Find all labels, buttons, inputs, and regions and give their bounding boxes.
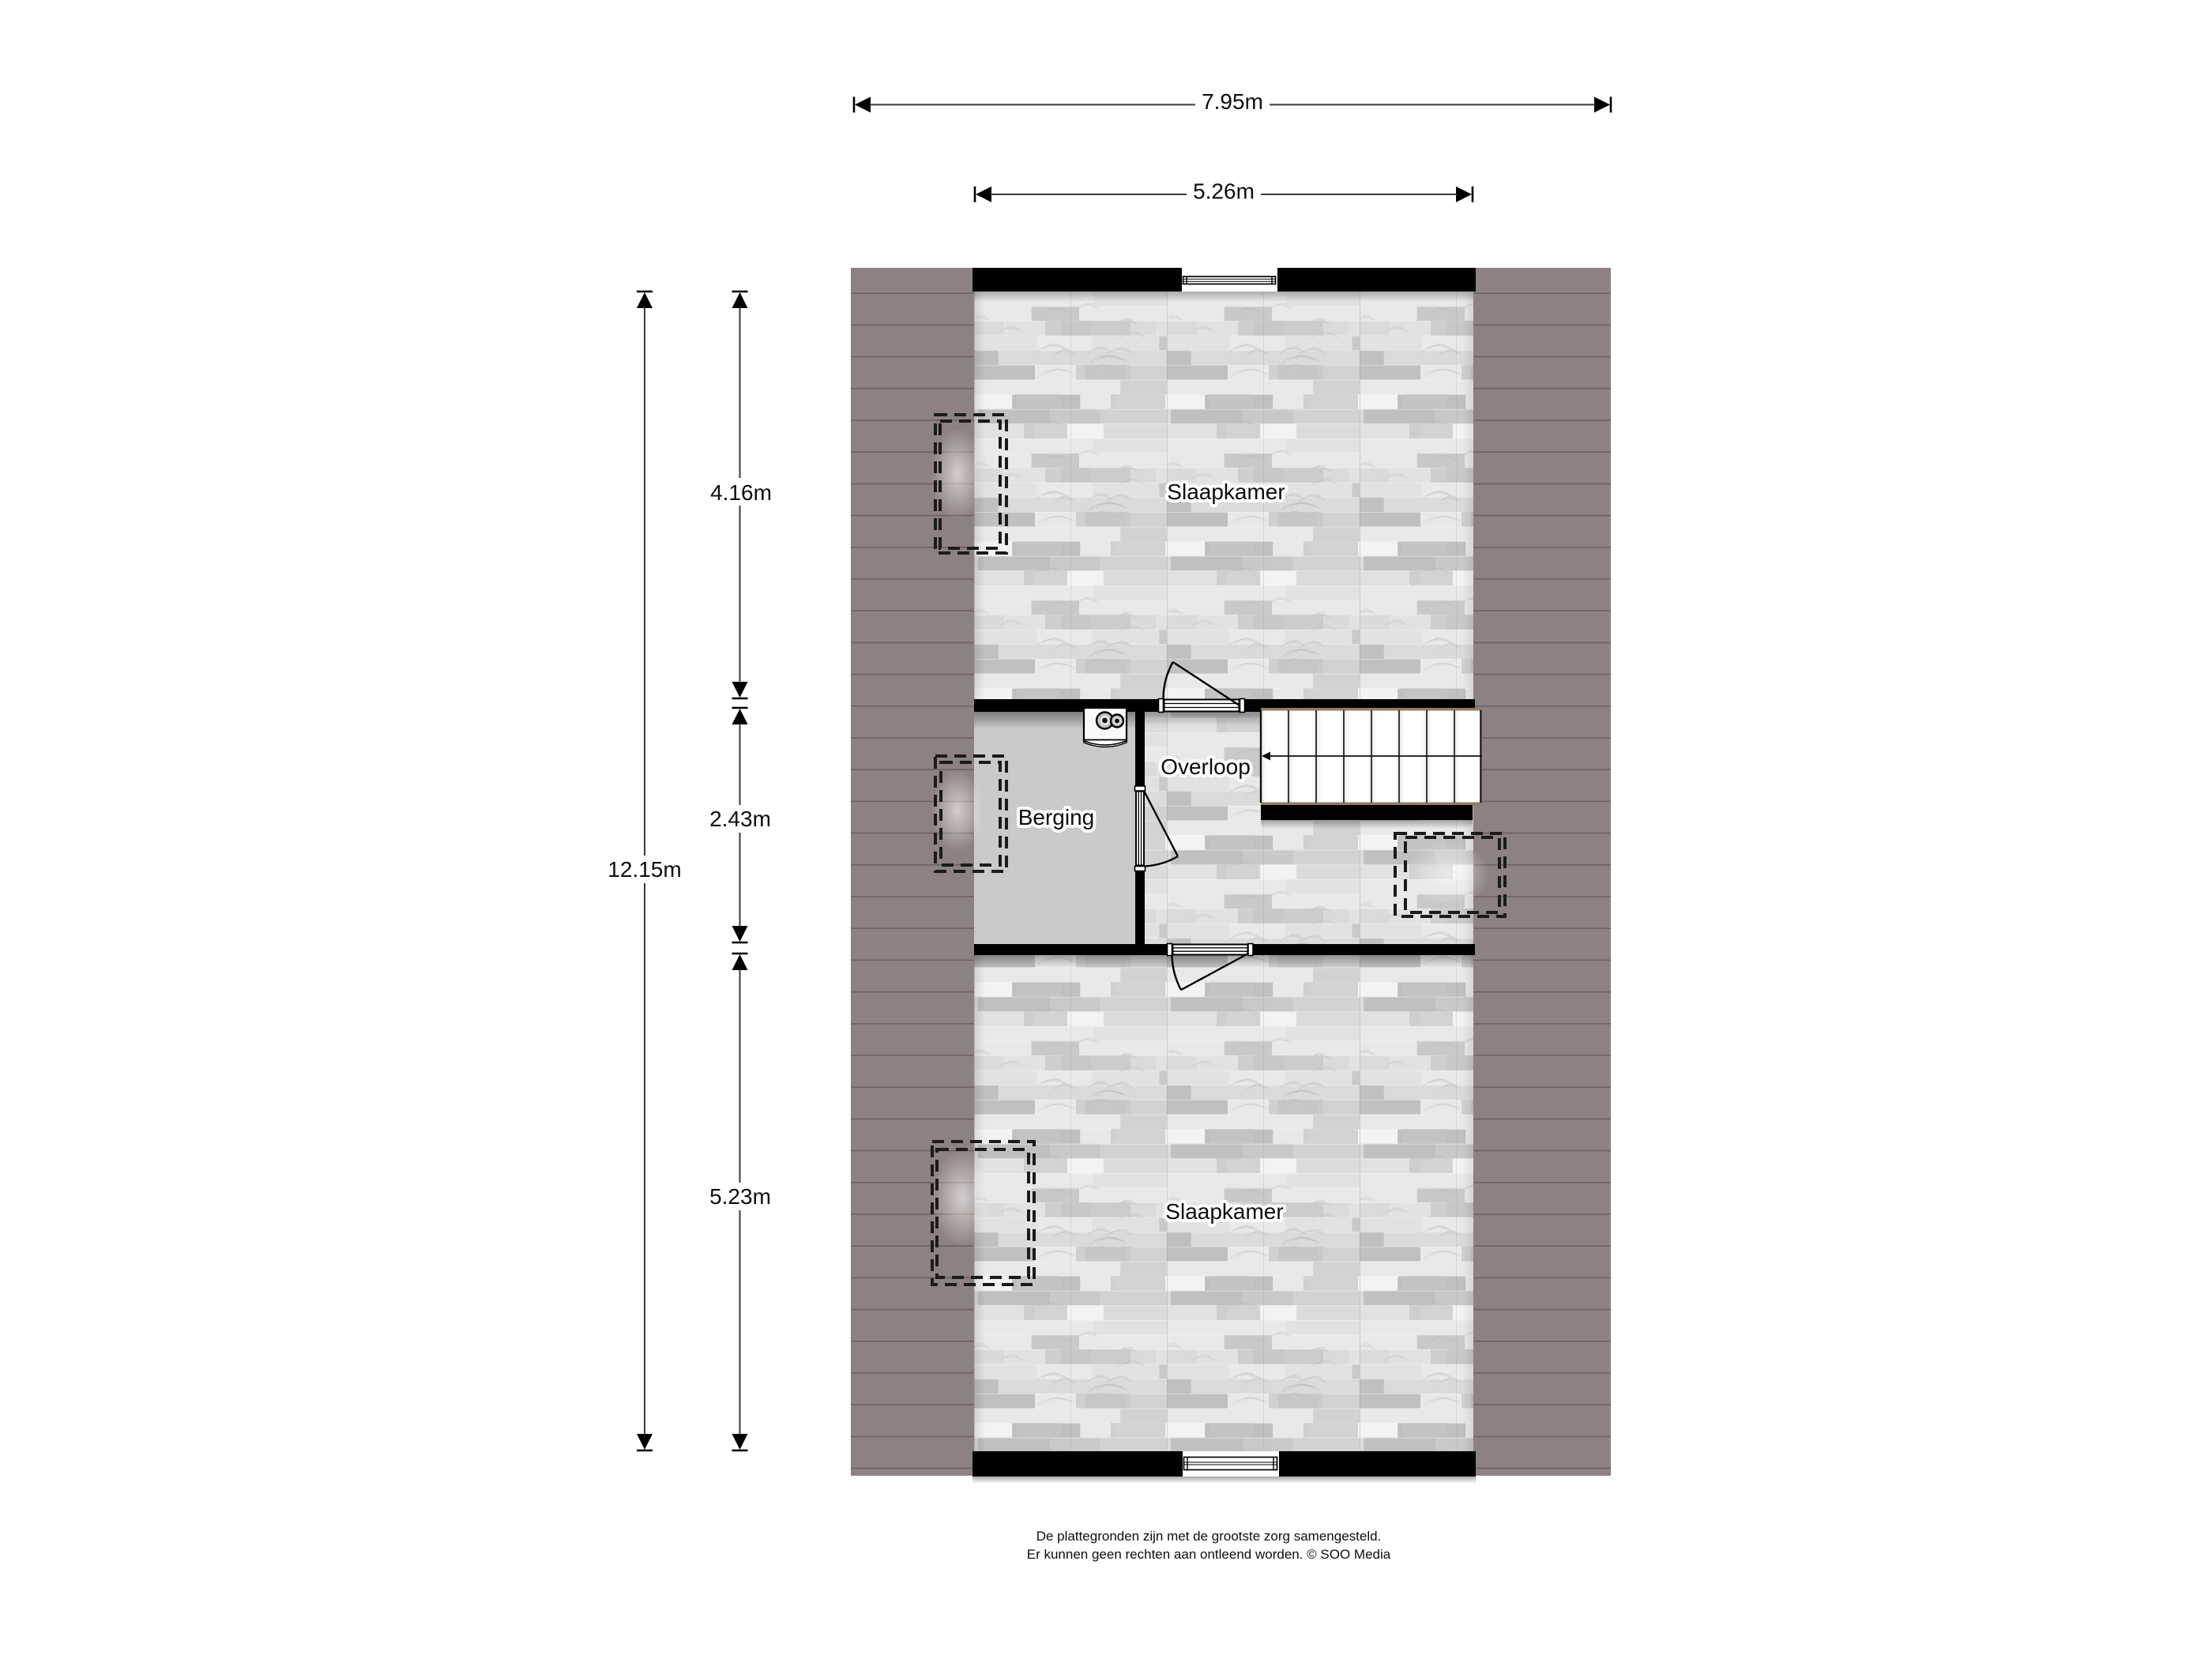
svg-text:5.26m: 5.26m [1193,179,1255,204]
svg-text:4.16m: 4.16m [710,480,772,505]
svg-text:7.95m: 7.95m [1202,89,1263,114]
svg-text:12.15m: 12.15m [608,857,681,882]
svg-text:De plattegronden zijn met de g: De plattegronden zijn met de grootste zo… [1036,1529,1382,1544]
svg-text:2.43m: 2.43m [709,807,771,831]
svg-text:Slaapkamer: Slaapkamer [1165,1199,1283,1224]
svg-text:5.23m: 5.23m [709,1184,771,1209]
svg-text:Berging: Berging [1018,805,1095,829]
svg-text:Er kunnen geen rechten aan ont: Er kunnen geen rechten aan ontleend word… [1027,1547,1391,1562]
svg-text:Overloop: Overloop [1161,754,1251,779]
svg-text:Slaapkamer: Slaapkamer [1167,480,1285,504]
